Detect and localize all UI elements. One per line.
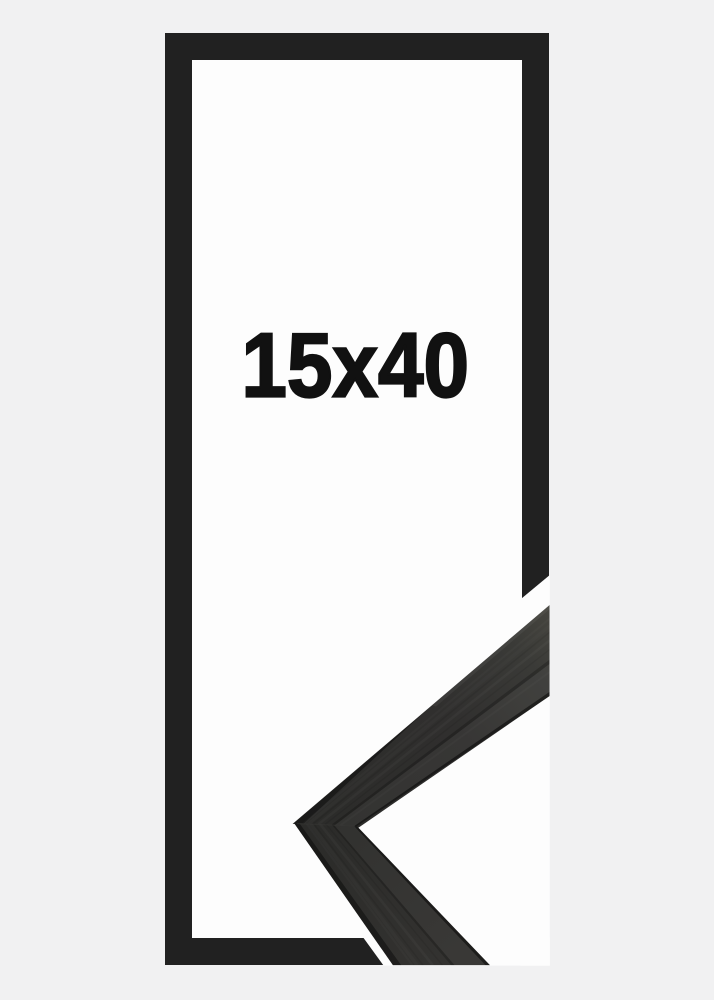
svg-text:15x40: 15x40 — [241, 316, 469, 417]
